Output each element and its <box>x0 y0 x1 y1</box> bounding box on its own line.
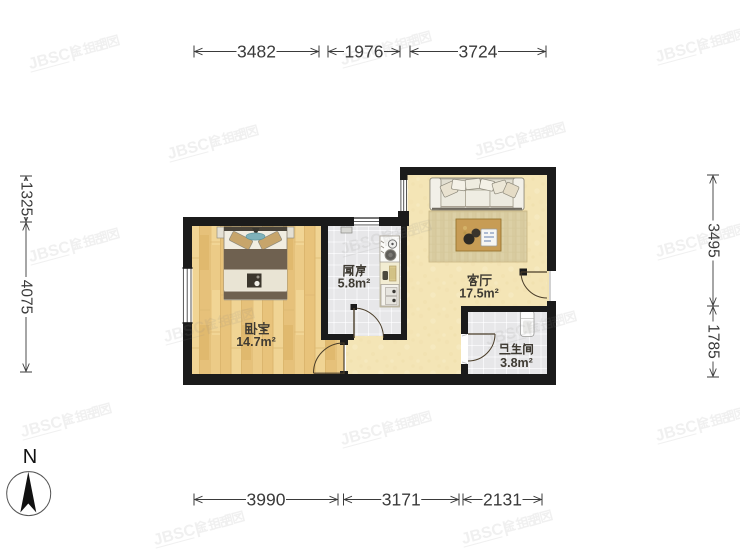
svg-text:2131: 2131 <box>483 490 522 510</box>
svg-text:JBSC|: JBSC| <box>166 134 216 163</box>
svg-text:4075: 4075 <box>18 280 35 314</box>
svg-text:3171: 3171 <box>382 490 421 510</box>
svg-text:3990: 3990 <box>247 490 286 510</box>
svg-text:3724: 3724 <box>459 42 498 62</box>
svg-text:N: N <box>23 446 37 468</box>
svg-text:JBSC|: JBSC| <box>654 416 704 445</box>
svg-text:JBSC|: JBSC| <box>27 237 77 266</box>
svg-text:17.5m²: 17.5m² <box>459 287 499 301</box>
svg-text:JBSC|: JBSC| <box>339 420 389 449</box>
svg-text:1325: 1325 <box>18 182 35 216</box>
svg-text:JBSC|: JBSC| <box>473 131 523 160</box>
svg-text:3482: 3482 <box>237 42 276 62</box>
svg-text:JBSC|: JBSC| <box>27 44 77 73</box>
svg-text:JBSC|: JBSC| <box>19 412 69 441</box>
svg-text:14.7m²: 14.7m² <box>236 335 276 349</box>
svg-text:3.8m²: 3.8m² <box>500 356 533 370</box>
svg-text:JBSC|: JBSC| <box>654 37 704 66</box>
svg-text:1785: 1785 <box>705 324 722 358</box>
svg-text:JBSC|: JBSC| <box>654 232 704 261</box>
svg-text:JBSC|: JBSC| <box>460 519 510 548</box>
svg-text:JBSC|: JBSC| <box>152 520 202 549</box>
svg-text:5.8m²: 5.8m² <box>338 277 371 291</box>
